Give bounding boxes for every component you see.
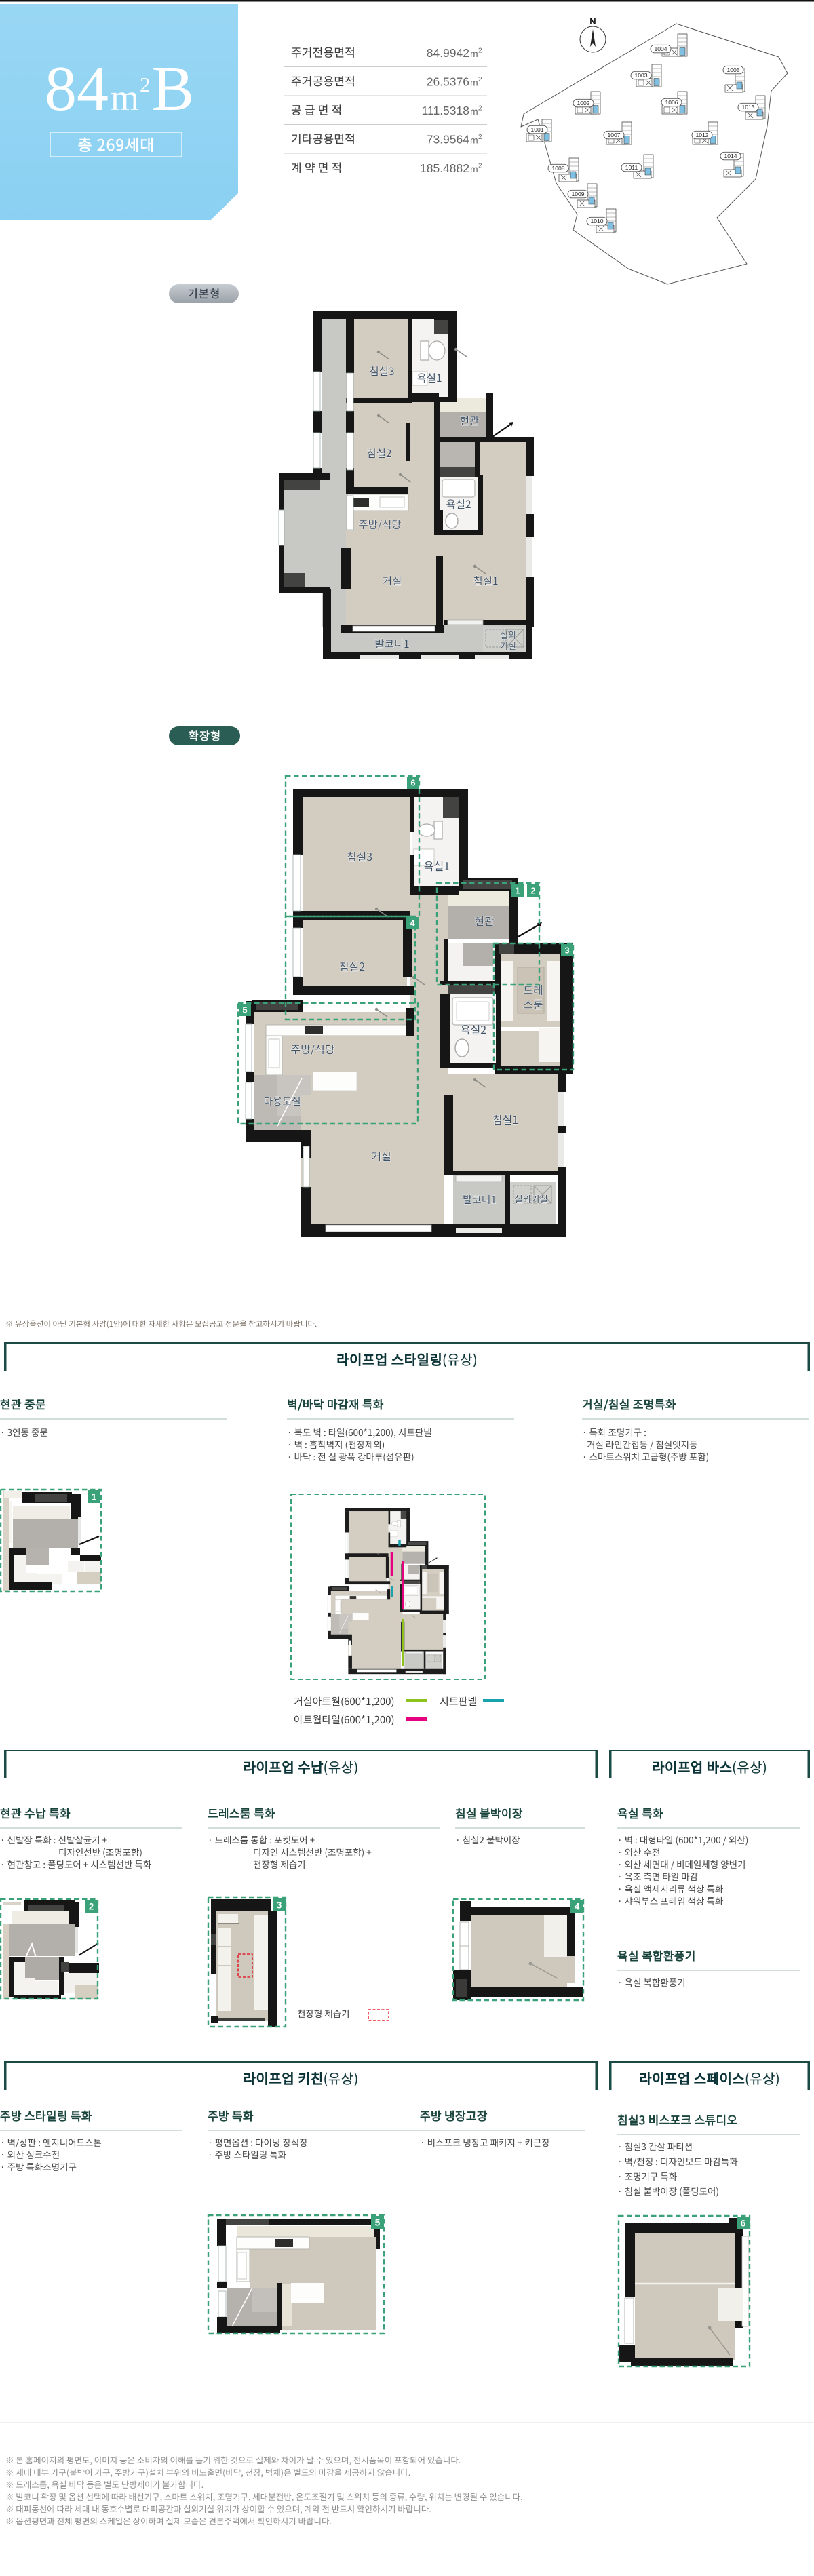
svg-text:5: 5 (242, 1005, 247, 1015)
svg-text:1011: 1011 (625, 164, 638, 171)
svg-text:2: 2 (530, 886, 535, 896)
svg-text:2: 2 (478, 163, 482, 170)
svg-text:m: m (470, 106, 478, 117)
svg-text:1014: 1014 (724, 153, 737, 159)
svg-text:6: 6 (410, 778, 415, 788)
svg-text:2: 2 (89, 1902, 94, 1912)
svg-text:4: 4 (575, 1902, 580, 1912)
svg-text:1010: 1010 (590, 218, 603, 225)
svg-text:2: 2 (478, 76, 482, 83)
svg-text:N: N (589, 16, 596, 26)
svg-text:84.9942: 84.9942 (427, 46, 469, 60)
svg-text:m: m (470, 77, 478, 88)
svg-text:1005: 1005 (726, 66, 739, 73)
svg-text:2: 2 (478, 134, 482, 141)
svg-text:1006: 1006 (665, 99, 678, 106)
svg-text:185.4882: 185.4882 (420, 161, 469, 175)
svg-text:111.5318: 111.5318 (422, 104, 469, 117)
svg-text:m: m (470, 48, 478, 59)
svg-text:1002: 1002 (577, 100, 589, 106)
svg-text:1009: 1009 (571, 191, 584, 197)
svg-text:m: m (470, 135, 478, 146)
svg-text:m: m (470, 163, 478, 174)
svg-text:1: 1 (92, 1492, 97, 1502)
svg-text:1012: 1012 (695, 132, 708, 138)
svg-text:3: 3 (277, 1900, 282, 1911)
svg-text:1008: 1008 (551, 165, 564, 172)
svg-text:5: 5 (375, 2218, 381, 2228)
svg-text:1013: 1013 (741, 104, 754, 111)
svg-text:3: 3 (564, 945, 569, 956)
svg-text:1004: 1004 (654, 45, 667, 52)
svg-text:4: 4 (410, 918, 415, 929)
svg-text:2: 2 (478, 47, 482, 55)
svg-text:1: 1 (515, 886, 520, 896)
svg-text:2: 2 (478, 105, 482, 113)
svg-text:73.9564: 73.9564 (427, 133, 470, 147)
svg-text:1001: 1001 (530, 126, 543, 133)
svg-text:26.5376: 26.5376 (427, 75, 469, 89)
svg-text:1003: 1003 (634, 72, 647, 79)
svg-text:1007: 1007 (607, 132, 620, 138)
svg-text:6: 6 (741, 2219, 746, 2229)
